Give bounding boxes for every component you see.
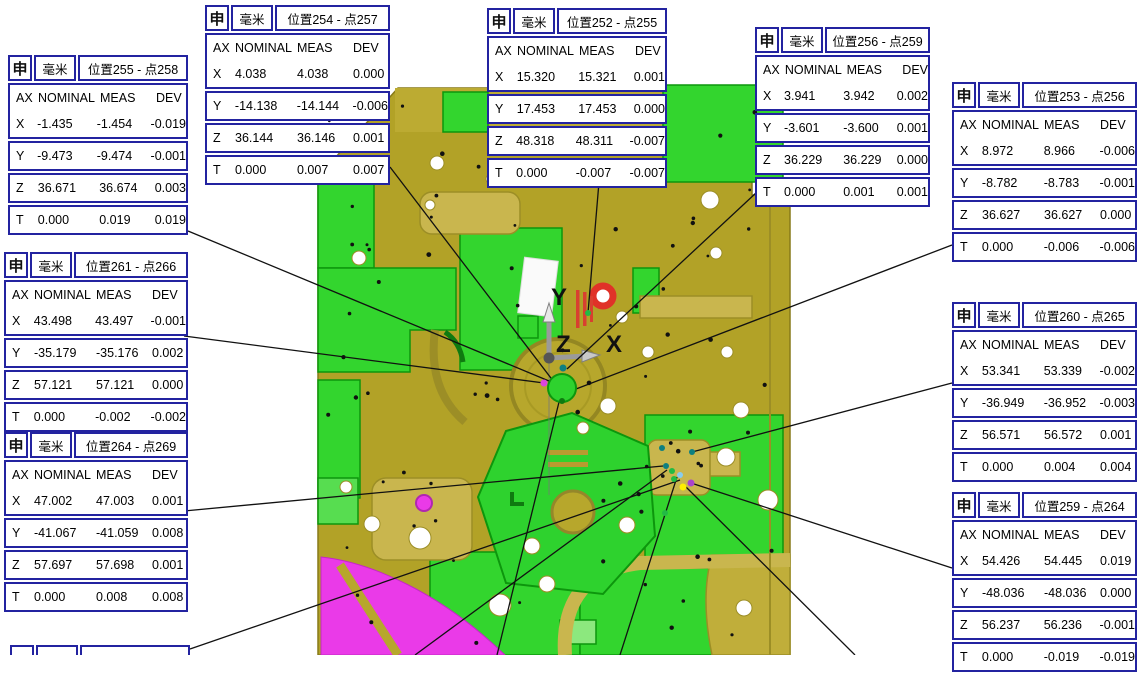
value-row2-ax: Z [12, 378, 34, 392]
value-row3-dev: 0.001 [897, 185, 928, 199]
value-row2-meas: 57.121 [96, 378, 152, 392]
column-header-nom: NOMINAL [235, 41, 297, 55]
value-row2-dev: 0.001 [353, 131, 388, 145]
red-ring-marker [593, 286, 613, 306]
column-header-dev: DEV [1100, 528, 1135, 542]
value-row1-nom: -9.473 [37, 149, 97, 163]
value-row1-dev: 0.002 [152, 346, 186, 360]
value-row3-nom: 0.000 [38, 213, 99, 227]
value-row1-ax: Y [960, 176, 982, 190]
value-row3-ax: T [960, 460, 982, 474]
value-row3-dev: 0.004 [1100, 460, 1135, 474]
callout-title: 位置252 - 点255 [557, 8, 667, 34]
value-x-nom: 47.002 [34, 494, 96, 508]
value-row1-ax: Y [12, 346, 34, 360]
value-row1-dev: -0.001 [1100, 176, 1135, 190]
value-row3-nom: 0.000 [784, 185, 843, 199]
value-x-ax: X [213, 67, 235, 81]
unit-label: 毫米 [513, 8, 555, 34]
value-x-dev: 0.001 [152, 494, 186, 508]
value-row3-dev: -0.006 [1100, 240, 1135, 254]
value-x-dev: 0.001 [634, 70, 665, 84]
value-row2-nom: 36.229 [784, 153, 843, 167]
value-x-meas: 43.497 [95, 314, 150, 328]
value-x-nom: 53.341 [982, 364, 1044, 378]
value-x-meas: 47.003 [96, 494, 152, 508]
column-header-ax: AX [960, 338, 982, 352]
value-row2-meas: 36.229 [843, 153, 896, 167]
value-row3-nom: 0.000 [516, 166, 576, 180]
value-x-meas: -1.454 [97, 117, 151, 131]
column-header-meas: MEAS [96, 288, 152, 302]
value-row2-meas: 48.311 [576, 134, 630, 148]
column-header-ax: AX [213, 41, 235, 55]
callout-title: 位置253 - 点256 [1022, 82, 1137, 108]
value-x-ax: X [960, 364, 982, 378]
value-row1-meas: -3.600 [843, 121, 896, 135]
dimension-callout-pos261[interactable]: 申毫米位置261 - 点266AXNOMINALMEASDEVX43.49843… [4, 252, 188, 434]
position-dimension-icon: 申 [8, 55, 32, 81]
unit-label: 毫米 [781, 27, 823, 53]
callout-title: 位置255 - 点258 [78, 55, 188, 81]
value-x-dev: -0.001 [151, 314, 186, 328]
dimension-callout-pos264[interactable]: 申毫米位置264 - 点269AXNOMINALMEASDEVX47.00247… [4, 432, 188, 614]
column-header-meas: MEAS [579, 44, 635, 58]
column-header-meas: MEAS [96, 468, 152, 482]
dimension-callout-pos260[interactable]: 申毫米位置260 - 点265AXNOMINALMEASDEVX53.34153… [952, 302, 1137, 484]
column-header-ax: AX [16, 91, 38, 105]
value-row2-ax: Z [960, 618, 982, 632]
value-x-nom: 43.498 [34, 314, 95, 328]
position-dimension-icon: 申 [952, 302, 976, 328]
column-header-ax: AX [960, 118, 982, 132]
column-header-dev: DEV [156, 91, 186, 105]
value-x-nom: 8.972 [982, 144, 1044, 158]
measurement-report-view: Y Z X 申毫米位置254 - 点257AXNOMI [0, 0, 1143, 655]
value-row3-ax: T [960, 650, 982, 664]
axis-label-x: X [606, 331, 622, 358]
value-row1-meas: -35.176 [96, 346, 152, 360]
value-row3-dev: 0.019 [155, 213, 186, 227]
value-row2-ax: Z [12, 558, 34, 572]
value-row1-dev: -0.006 [353, 99, 388, 113]
value-row1-nom: -36.949 [982, 396, 1044, 410]
callout-title: 位置256 - 点259 [825, 27, 930, 53]
value-row3-ax: T [495, 166, 516, 180]
value-x-meas: 4.038 [297, 67, 353, 81]
column-header-meas: MEAS [1044, 118, 1100, 132]
value-row1-meas: -8.783 [1044, 176, 1100, 190]
callout-title: 位置260 - 点265 [1022, 302, 1137, 328]
column-header-meas: MEAS [100, 91, 156, 105]
column-header-meas: MEAS [297, 41, 353, 55]
value-row2-dev: -0.001 [1100, 618, 1135, 632]
value-row2-ax: Z [16, 181, 38, 195]
value-row1-meas: -9.474 [97, 149, 151, 163]
value-row3-dev: -0.002 [151, 410, 186, 424]
value-x-nom: 54.426 [982, 554, 1044, 568]
column-header-nom: NOMINAL [982, 528, 1044, 542]
value-row3-meas: -0.019 [1044, 650, 1100, 664]
value-row2-dev: 0.001 [152, 558, 186, 572]
value-row1-dev: 0.000 [1100, 586, 1135, 600]
value-row1-dev: 0.001 [897, 121, 928, 135]
axis-label-y: Y [551, 284, 567, 311]
unit-label: 毫米 [978, 492, 1020, 518]
value-row2-meas: 36.146 [297, 131, 353, 145]
position-dimension-icon: 申 [487, 8, 511, 34]
value-row3-ax: T [12, 410, 34, 424]
value-row3-meas: -0.007 [576, 166, 630, 180]
value-row1-nom: -35.179 [34, 346, 96, 360]
unit-label: 毫米 [231, 5, 273, 31]
unit-label: 毫米 [978, 82, 1020, 108]
value-row1-ax: Y [16, 149, 37, 163]
column-header-dev: DEV [152, 468, 186, 482]
value-row2-nom: 36.144 [235, 131, 297, 145]
value-x-ax: X [763, 89, 784, 103]
value-x-meas: 8.966 [1044, 144, 1100, 158]
column-header-meas: MEAS [847, 63, 903, 77]
column-header-dev: DEV [1100, 338, 1135, 352]
column-header-ax: AX [495, 44, 517, 58]
column-header-dev: DEV [152, 288, 186, 302]
column-header-meas: MEAS [1044, 338, 1100, 352]
value-row1-nom: -41.067 [34, 526, 96, 540]
value-row1-ax: Y [213, 99, 235, 113]
value-row3-ax: T [213, 163, 235, 177]
value-x-ax: X [12, 494, 34, 508]
column-header-ax: AX [12, 468, 34, 482]
column-header-nom: NOMINAL [982, 118, 1044, 132]
value-x-nom: -1.435 [37, 117, 97, 131]
value-row1-meas: -36.952 [1044, 396, 1100, 410]
value-row2-nom: 56.237 [982, 618, 1044, 632]
value-row3-meas: 0.001 [843, 185, 896, 199]
value-x-ax: X [12, 314, 34, 328]
value-row2-dev: -0.007 [630, 134, 665, 148]
value-row1-dev: -0.001 [151, 149, 186, 163]
value-row1-meas: 17.453 [578, 102, 633, 116]
value-row3-nom: 0.000 [34, 590, 96, 604]
value-row3-meas: 0.019 [99, 213, 154, 227]
unit-label: 毫米 [978, 302, 1020, 328]
value-x-nom: 15.320 [517, 70, 578, 84]
value-row2-ax: Z [960, 208, 982, 222]
dimension-callout-pos256[interactable]: 申毫米位置256 - 点259AXNOMINALMEASDEVX3.9413.9… [755, 27, 930, 209]
value-x-meas: 15.321 [578, 70, 633, 84]
value-row3-ax: T [763, 185, 784, 199]
value-row1-ax: Y [960, 586, 982, 600]
dimension-callout-pos255[interactable]: 申毫米位置255 - 点258AXNOMINALMEASDEVX-1.435-1… [8, 55, 188, 237]
value-row1-nom: -8.782 [982, 176, 1044, 190]
value-x-nom: 4.038 [235, 67, 297, 81]
column-header-ax: AX [763, 63, 785, 77]
value-row3-meas: -0.006 [1044, 240, 1100, 254]
value-row3-nom: 0.000 [235, 163, 297, 177]
value-row2-ax: Z [213, 131, 235, 145]
value-x-meas: 54.445 [1044, 554, 1100, 568]
value-x-dev: -0.006 [1100, 144, 1135, 158]
value-x-ax: X [960, 554, 982, 568]
value-row3-meas: 0.004 [1044, 460, 1100, 474]
value-x-nom: 3.941 [784, 89, 843, 103]
value-row2-meas: 36.627 [1044, 208, 1100, 222]
value-x-dev: -0.002 [1100, 364, 1135, 378]
dimension-callout-pos254[interactable]: 申毫米位置254 - 点257AXNOMINALMEASDEVX4.0384.0… [205, 5, 390, 187]
column-header-nom: NOMINAL [38, 91, 100, 105]
position-dimension-icon [10, 645, 34, 655]
column-header-nom: NOMINAL [34, 288, 96, 302]
value-row2-dev: 0.000 [152, 378, 186, 392]
callout-title: 位置261 - 点266 [74, 252, 188, 278]
value-row2-nom: 57.697 [34, 558, 96, 572]
value-row2-meas: 56.572 [1044, 428, 1100, 442]
value-row2-meas: 56.236 [1044, 618, 1100, 632]
callout-title: 位置259 - 点264 [1022, 492, 1137, 518]
column-header-nom: NOMINAL [517, 44, 579, 58]
column-header-nom: NOMINAL [785, 63, 847, 77]
value-row1-nom: 17.453 [517, 102, 578, 116]
dimension-callout-pos259[interactable]: 申毫米位置259 - 点264AXNOMINALMEASDEVX54.42654… [952, 492, 1137, 674]
value-row3-ax: T [12, 590, 34, 604]
value-x-ax: X [495, 70, 517, 84]
value-row2-dev: 0.001 [1100, 428, 1135, 442]
value-row2-ax: Z [495, 134, 516, 148]
axis-label-z: Z [556, 331, 571, 358]
value-row1-meas: -41.059 [96, 526, 152, 540]
position-dimension-icon: 申 [4, 432, 28, 458]
value-x-ax: X [960, 144, 982, 158]
value-row1-nom: -3.601 [784, 121, 843, 135]
value-row3-meas: -0.002 [95, 410, 150, 424]
dimension-callout-partial[interactable] [10, 645, 190, 655]
column-header-nom: NOMINAL [982, 338, 1044, 352]
position-dimension-icon: 申 [205, 5, 229, 31]
column-header-ax: AX [12, 288, 34, 302]
value-row3-dev: 0.007 [353, 163, 388, 177]
value-row3-dev: -0.019 [1100, 650, 1135, 664]
position-dimension-icon: 申 [952, 82, 976, 108]
value-row3-nom: 0.000 [34, 410, 95, 424]
value-row1-meas: -14.144 [297, 99, 353, 113]
value-row2-dev: 0.000 [1100, 208, 1135, 222]
value-row3-ax: T [16, 213, 38, 227]
dimension-callout-pos252[interactable]: 申毫米位置252 - 点255AXNOMINALMEASDEVX15.32015… [487, 8, 667, 190]
column-header-nom: NOMINAL [34, 468, 96, 482]
value-x-meas: 53.339 [1044, 364, 1100, 378]
value-row3-ax: T [960, 240, 982, 254]
value-row1-nom: -14.138 [235, 99, 297, 113]
column-header-dev: DEV [635, 44, 665, 58]
value-row3-nom: 0.000 [982, 460, 1044, 474]
value-row2-nom: 56.571 [982, 428, 1044, 442]
column-header-dev: DEV [1100, 118, 1135, 132]
value-x-dev: 0.019 [1100, 554, 1135, 568]
value-row2-nom: 48.318 [516, 134, 576, 148]
dimension-callout-pos253[interactable]: 申毫米位置253 - 点256AXNOMINALMEASDEVX8.9728.9… [952, 82, 1137, 264]
value-row3-dev: -0.007 [630, 166, 665, 180]
value-row1-dev: 0.000 [634, 102, 665, 116]
value-x-dev: -0.019 [151, 117, 186, 131]
unit-label: 毫米 [30, 252, 72, 278]
value-row1-ax: Y [763, 121, 784, 135]
value-row1-nom: -48.036 [982, 586, 1044, 600]
value-x-ax: X [16, 117, 37, 131]
value-row3-nom: 0.000 [982, 240, 1044, 254]
value-row1-ax: Y [495, 102, 517, 116]
value-row2-dev: 0.003 [155, 181, 186, 195]
value-x-dev: 0.002 [897, 89, 928, 103]
value-row3-meas: 0.008 [96, 590, 152, 604]
position-dimension-icon: 申 [755, 27, 779, 53]
column-header-meas: MEAS [1044, 528, 1100, 542]
value-row2-nom: 57.121 [34, 378, 96, 392]
position-dimension-icon: 申 [952, 492, 976, 518]
callout-title: 位置264 - 点269 [74, 432, 188, 458]
value-x-dev: 0.000 [353, 67, 388, 81]
value-row2-nom: 36.627 [982, 208, 1044, 222]
value-row2-dev: 0.000 [897, 153, 928, 167]
value-row2-ax: Z [763, 153, 784, 167]
value-row1-dev: 0.008 [152, 526, 186, 540]
value-row3-dev: 0.008 [152, 590, 186, 604]
value-row1-ax: Y [12, 526, 34, 540]
column-header-dev: DEV [353, 41, 388, 55]
value-row2-nom: 36.671 [38, 181, 99, 195]
value-row1-ax: Y [960, 396, 982, 410]
position-dimension-icon: 申 [4, 252, 28, 278]
value-row1-meas: -48.036 [1044, 586, 1100, 600]
value-row1-dev: -0.003 [1100, 396, 1135, 410]
value-row3-meas: 0.007 [297, 163, 353, 177]
unit-label: 毫米 [30, 432, 72, 458]
callout-title: 位置254 - 点257 [275, 5, 390, 31]
unit-label: 毫米 [34, 55, 76, 81]
value-row2-ax: Z [960, 428, 982, 442]
value-row2-meas: 57.698 [96, 558, 152, 572]
value-row3-nom: 0.000 [982, 650, 1044, 664]
value-x-meas: 3.942 [843, 89, 896, 103]
column-header-dev: DEV [902, 63, 928, 77]
column-header-ax: AX [960, 528, 982, 542]
value-row2-meas: 36.674 [99, 181, 154, 195]
